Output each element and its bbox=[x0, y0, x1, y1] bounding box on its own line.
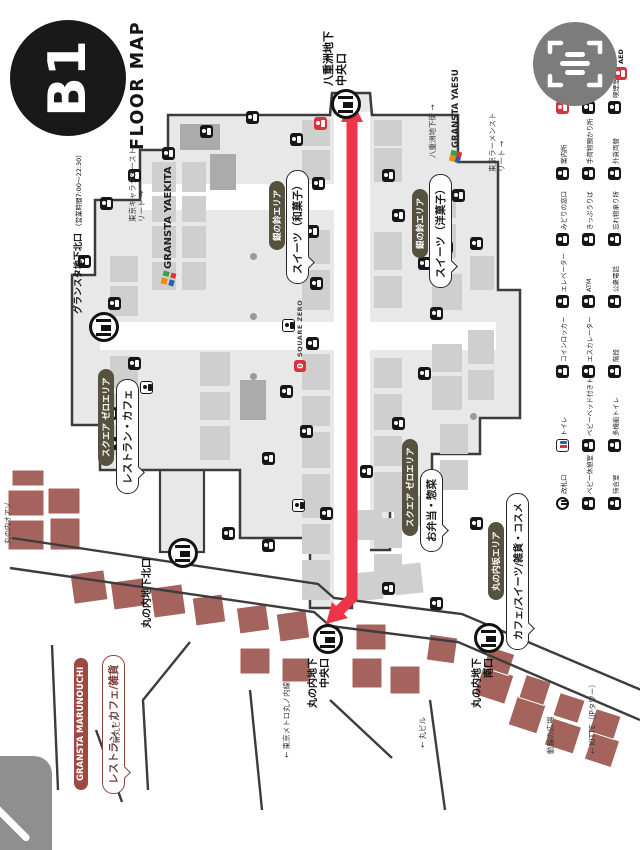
landmark-marubiru: ← 丸ビル bbox=[418, 717, 427, 748]
legend-item: 階段 bbox=[608, 349, 621, 378]
coin-locker-icon bbox=[556, 365, 569, 378]
area-pill-squarezero-1: スクエア ゼロエリア bbox=[98, 369, 114, 466]
facility-icon bbox=[310, 277, 323, 290]
rotated-map-canvas: B1 FLOOR MAP 八重洲地下 中央口 グランスタ地下北口 （営業時間7:… bbox=[0, 0, 640, 850]
facility-icon bbox=[382, 582, 395, 595]
yaesu-central-gate-icon bbox=[331, 89, 361, 119]
facility-icon bbox=[418, 367, 431, 380]
legend-label: 多機能トイレ bbox=[610, 397, 620, 436]
gransta-north-gate-icon bbox=[89, 312, 119, 342]
facility-icon bbox=[430, 597, 443, 610]
floor-badge-text: B1 bbox=[38, 39, 98, 117]
landmark-shin-marubiru: ← 新丸ビル bbox=[112, 713, 121, 752]
waiting-room-icon bbox=[608, 497, 621, 510]
facility-icon bbox=[262, 452, 275, 465]
gransta-marunouchi-pill: GRANSTA MARUNOUCHI bbox=[74, 658, 88, 790]
landmark-yaechika: 八重洲地下街 → bbox=[428, 104, 437, 158]
legend-label: 忘れ物承り所 bbox=[610, 191, 620, 230]
facility-icon bbox=[300, 425, 313, 438]
legend-label: 案内所 bbox=[558, 145, 568, 165]
legend-label: コインロッカー bbox=[558, 317, 568, 363]
gate-label-line: グランスタ地下北口 bbox=[74, 233, 84, 314]
lost-found-icon bbox=[608, 233, 621, 246]
area-pill-ginnosuzu-2: 銀の鈴エリア bbox=[412, 189, 428, 258]
area-bubble-sweets-yogashi: スイーツ（洋菓子） bbox=[429, 174, 452, 288]
phone-icon bbox=[608, 295, 621, 308]
yaesu-central-gate-label: 八重洲地下 中央口 bbox=[322, 31, 348, 86]
facility-icon bbox=[222, 527, 235, 540]
facility-icon bbox=[382, 169, 395, 182]
baby-toilet-icon bbox=[582, 439, 595, 452]
landmark-metro: ← 東京メトロ丸ノ内線 bbox=[282, 682, 291, 758]
gate-label-line: 八重洲地下 bbox=[322, 31, 335, 86]
gate-hours: （営業時間7:00〜22:30） bbox=[75, 151, 83, 230]
gate-label-line: 丸の内地下 bbox=[308, 658, 320, 724]
legend-item: ATM bbox=[582, 278, 595, 308]
elevator-icon bbox=[556, 295, 569, 308]
gransta-yaesu-text: GRANSTA YAESU bbox=[451, 69, 461, 148]
facility-icon bbox=[360, 465, 373, 478]
area-pill-marunouchizaka: 丸の内坂エリア bbox=[488, 522, 504, 600]
legend-item: 案内所 bbox=[556, 145, 569, 181]
facility-icon bbox=[262, 539, 275, 552]
facility-icon bbox=[128, 357, 141, 370]
legend-label: みどりの窓口 bbox=[558, 191, 568, 230]
legend-label: AED bbox=[617, 49, 625, 64]
scan-frame-icon bbox=[533, 22, 617, 106]
facility-icon bbox=[100, 197, 113, 210]
legend-item: 多機能トイレ bbox=[608, 397, 621, 452]
gransta-north-gate-label: グランスタ地下北口 （営業時間7:00〜22:30） bbox=[74, 151, 85, 314]
square-zero-text: SQUARE ZERO bbox=[296, 300, 304, 357]
legend-item: エレベーター bbox=[556, 253, 569, 308]
atm-icon bbox=[582, 295, 595, 308]
gate-icon bbox=[556, 497, 569, 510]
marunouchi-north-gate-label: 丸の内地下北口 bbox=[142, 558, 154, 628]
facility-icon bbox=[320, 507, 333, 520]
legend-label: エスカレーター bbox=[584, 317, 594, 363]
gransta-scan-logo bbox=[533, 22, 617, 106]
facility-icon bbox=[306, 337, 319, 350]
marunouchi-central-gate-label: 丸の内地下 中央口 bbox=[308, 658, 332, 724]
marunouchi-north-gate-icon bbox=[168, 538, 198, 568]
escalator-icon bbox=[582, 365, 595, 378]
legend-item: エスカレーター bbox=[582, 317, 595, 379]
gransta-pinwheel-icon bbox=[449, 150, 462, 163]
legend-item: ベビー休憩室 bbox=[582, 455, 595, 510]
legend-label: エレベーター bbox=[558, 253, 568, 292]
legend-item: トイレ bbox=[556, 417, 569, 453]
area-bubble-cafe-sweets-goods: カフェ/スイーツ/雑貨・コスメ bbox=[506, 493, 529, 650]
legend-item: 公衆電話 bbox=[608, 266, 621, 308]
accessible-toilet-icon bbox=[608, 439, 621, 452]
gransta-yaesu-logo: GRANSTA YAESU bbox=[450, 69, 461, 162]
pillar-dot bbox=[250, 313, 257, 320]
landmark-dorin-plaza: 動輪の広場 bbox=[546, 717, 555, 755]
page-corner-tab[interactable] bbox=[0, 756, 52, 850]
elevator-icon bbox=[292, 499, 305, 512]
ticket-machine-icon bbox=[582, 233, 595, 246]
facility-icon bbox=[290, 133, 303, 146]
square-zero-mark: 0 SQUARE ZERO bbox=[294, 300, 306, 372]
information-icon bbox=[556, 167, 569, 180]
legend-label: 公衆電話 bbox=[610, 266, 620, 292]
legend-label: 外貨両替 bbox=[610, 138, 620, 164]
gate-label-line: 中央口 bbox=[335, 31, 348, 86]
elevator-icon bbox=[140, 381, 153, 394]
legend-label: 待合室 bbox=[610, 475, 620, 495]
facility-icon bbox=[392, 417, 405, 430]
area-pill-ginnosuzu-1: 銀の鈴エリア bbox=[269, 181, 285, 250]
currency-exchange-icon bbox=[608, 167, 621, 180]
facility-icon bbox=[108, 297, 121, 310]
area-pill-squarezero-2: スクエア ゼロエリア bbox=[402, 439, 418, 536]
legend-label: 手荷物預かり所 bbox=[584, 119, 594, 165]
area-bubble-restaurant-cafe: レストラン・カフェ bbox=[116, 380, 139, 495]
landmark-oazo: 丸の内オアゾ bbox=[4, 502, 13, 544]
legend: 改札口 ベビー休憩室 待合室 トイレ ベビーベッド付きトイレ 多機能トイレ コイ… bbox=[552, 48, 640, 518]
landmark-ramen-street: 東京ラーメンストリート → bbox=[488, 108, 507, 172]
legend-item: 待合室 bbox=[608, 475, 621, 511]
floor-map-page: B1 FLOOR MAP 八重洲地下 中央口 グランスタ地下北口 （営業時間7:… bbox=[0, 0, 640, 850]
page-title: FLOOR MAP bbox=[128, 32, 148, 150]
legend-label: きっぷうりば bbox=[584, 191, 594, 230]
baggage-storage-icon bbox=[582, 167, 595, 180]
pillar-dot bbox=[250, 253, 257, 260]
facility-icon bbox=[470, 517, 483, 530]
facility-icon bbox=[392, 209, 405, 222]
legend-item: コインロッカー bbox=[556, 317, 569, 379]
floor-badge: B1 bbox=[10, 20, 126, 136]
legend-item: 手荷物預かり所 bbox=[582, 119, 595, 181]
area-bubble-sweets-wagashi: スイーツ（和菓子） bbox=[286, 170, 309, 284]
legend-item: きっぷうりば bbox=[582, 191, 595, 246]
facility-icon bbox=[280, 385, 293, 398]
pillar-dot bbox=[250, 373, 257, 380]
gate-label-line: 丸の内地下 bbox=[472, 658, 484, 724]
legend-item: 改札口 bbox=[556, 475, 569, 511]
landmark-kitte: ← KITTE（JPタワー） bbox=[588, 680, 597, 754]
square-zero-icon: 0 bbox=[294, 360, 306, 372]
gransta-yaekita-text: GRANSTA YAEKITA bbox=[163, 166, 174, 269]
area-bubble-bento: お弁当・惣菜 bbox=[420, 469, 443, 552]
legend-label: ベビー休憩室 bbox=[584, 455, 594, 494]
legend-item: 忘れ物承り所 bbox=[608, 191, 621, 246]
gate-label-line: 中央口 bbox=[320, 658, 332, 724]
legend-item: みどりの窓口 bbox=[556, 191, 569, 246]
gransta-pinwheel-icon bbox=[161, 271, 177, 287]
toilet-icon bbox=[556, 439, 569, 452]
marunouchi-central-gate-icon bbox=[313, 624, 343, 654]
temporary-gate-icon bbox=[314, 117, 327, 130]
corner-tab-slash-icon bbox=[0, 799, 31, 842]
legend-label: トイレ bbox=[558, 417, 568, 437]
facility-icon bbox=[312, 177, 325, 190]
legend-label: ATM bbox=[585, 278, 593, 292]
legend-label: 階段 bbox=[610, 349, 620, 362]
marunouchi-south-gate-icon bbox=[474, 623, 504, 653]
ticket-office-icon bbox=[556, 233, 569, 246]
facility-icon bbox=[246, 111, 259, 124]
baby-room-icon bbox=[582, 497, 595, 510]
marunouchi-south-gate-label: 丸の内地下 南口 bbox=[472, 658, 496, 724]
landmark-character-street: 東京キャラクターストリート → bbox=[128, 144, 147, 222]
pillar-dot bbox=[470, 413, 477, 420]
legend-label: 改札口 bbox=[558, 475, 568, 495]
facility-icon bbox=[470, 237, 483, 250]
gransta-yaekita-logo: GRANSTA YAEKITA bbox=[162, 166, 175, 285]
stairs-icon bbox=[608, 365, 621, 378]
legend-item: 外貨両替 bbox=[608, 138, 621, 180]
facility-icon bbox=[162, 147, 175, 160]
facility-icon bbox=[452, 189, 465, 202]
facility-icon bbox=[200, 125, 213, 138]
gate-label-line: 南口 bbox=[484, 658, 496, 724]
facility-icon bbox=[430, 307, 443, 320]
